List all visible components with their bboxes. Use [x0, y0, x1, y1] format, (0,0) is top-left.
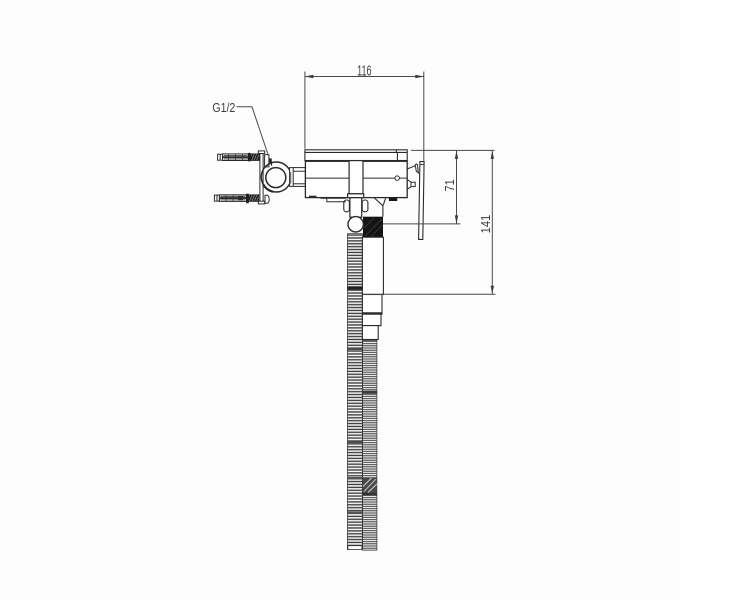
svg-text:141: 141: [478, 214, 493, 233]
svg-text:G1/2: G1/2: [212, 100, 235, 115]
svg-text:71: 71: [442, 179, 457, 192]
svg-text:116: 116: [357, 62, 372, 79]
